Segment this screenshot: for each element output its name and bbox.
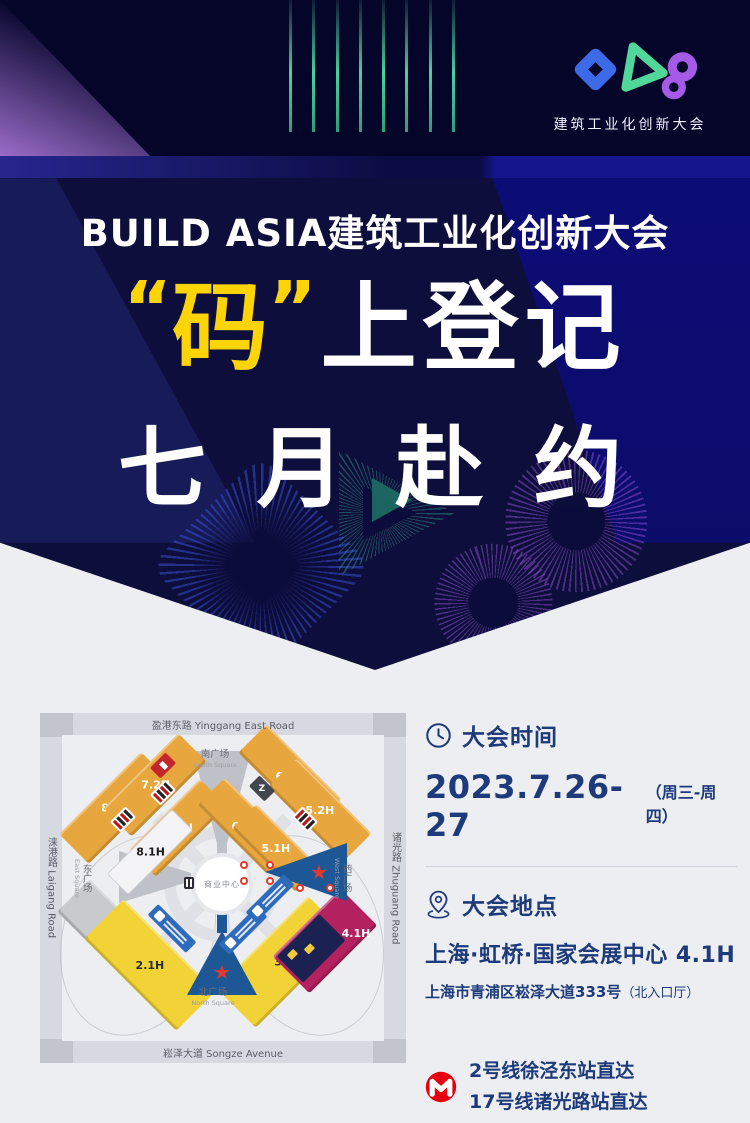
- road-yinggang-east: 盈港东路 Yinggang East Road: [49, 713, 397, 735]
- conference-logo: 建筑工业化创新大会: [530, 28, 730, 138]
- metro-lines: 2号线徐泾东站直达 17号线诸光路站直达: [469, 1056, 647, 1119]
- metro-row: 2号线徐泾东站直达 17号线诸光路站直达: [425, 1056, 737, 1119]
- road-laigang: 涞港路 Laigang Road: [40, 713, 62, 1063]
- metro-line-2: 2号线徐泾东站直达: [469, 1056, 647, 1087]
- divider: [425, 866, 737, 867]
- location-heading: 大会地点: [462, 887, 558, 921]
- location-pin-icon: [425, 890, 452, 919]
- date-row: 2023.7.26-27 （周三-周四）: [425, 768, 737, 844]
- location-heading-row: 大会地点: [425, 887, 737, 921]
- south-square-label: 南广场South Square: [175, 749, 255, 769]
- west-star-icon: ★: [310, 862, 328, 882]
- road-zhuguang: 诸光路 Zhuguang Road: [384, 713, 406, 1063]
- entrance-note: （北入口厅）: [621, 986, 699, 1001]
- metro-stop-marker: [266, 877, 274, 885]
- venue-map: 盈港东路 Yinggang East Road 崧泽大道 Songze Aven…: [35, 703, 411, 1093]
- metro-stop-marker: [266, 861, 274, 869]
- venue-address: 上海市青浦区崧泽大道333号（北入口厅）: [425, 981, 737, 1002]
- teal-lines-decoration: [289, 0, 455, 132]
- event-date: 2023.7.26-27: [425, 768, 642, 844]
- time-heading-row: 大会时间: [425, 718, 737, 752]
- logo-caption: 建筑工业化创新大会: [530, 114, 730, 134]
- shanghai-metro-icon: [425, 1071, 457, 1103]
- west-square-label: 西广场West Square: [333, 843, 351, 913]
- headline-rest: 上登记: [321, 278, 627, 379]
- metro-stop-marker: [240, 861, 248, 869]
- clock-icon: [425, 722, 452, 749]
- event-days: （周三-周四）: [646, 779, 737, 827]
- highlight-char: 码: [172, 278, 268, 379]
- close-quote: ”: [268, 278, 317, 341]
- logo-shapes-icon: [540, 28, 720, 110]
- open-quote: “: [123, 278, 172, 341]
- hero-section: 建筑工业化创新大会 BUILD ASIA建筑工业化创新大会 “码”上登记 七 月…: [0, 0, 750, 670]
- landmark-icon: [184, 877, 194, 889]
- blue-gradient-band: [0, 156, 750, 178]
- metro-stop-marker: [296, 884, 304, 892]
- metro-stop-marker: [240, 877, 248, 885]
- event-title: BUILD ASIA建筑工业化创新大会: [0, 203, 750, 257]
- north-star-icon: ★: [213, 962, 231, 982]
- north-square-label: 北广场North Square: [173, 987, 253, 1007]
- headline-line1: “码”上登记: [0, 278, 750, 379]
- road-songze-avenue: 崧泽大道 Songze Avenue: [49, 1041, 397, 1063]
- venue-name: 上海·虹桥·国家会展中心 4.1H: [425, 937, 737, 969]
- time-heading: 大会时间: [462, 718, 558, 752]
- info-panel: 大会时间 2023.7.26-27 （周三-周四） 大会地点 上海·虹桥·国家会…: [425, 718, 737, 1119]
- metro-line-17: 17号线诸光路站直达: [469, 1087, 647, 1118]
- headline-line2: 七 月 赴 约: [0, 398, 750, 525]
- east-square-label: 东广场East Square: [73, 843, 91, 913]
